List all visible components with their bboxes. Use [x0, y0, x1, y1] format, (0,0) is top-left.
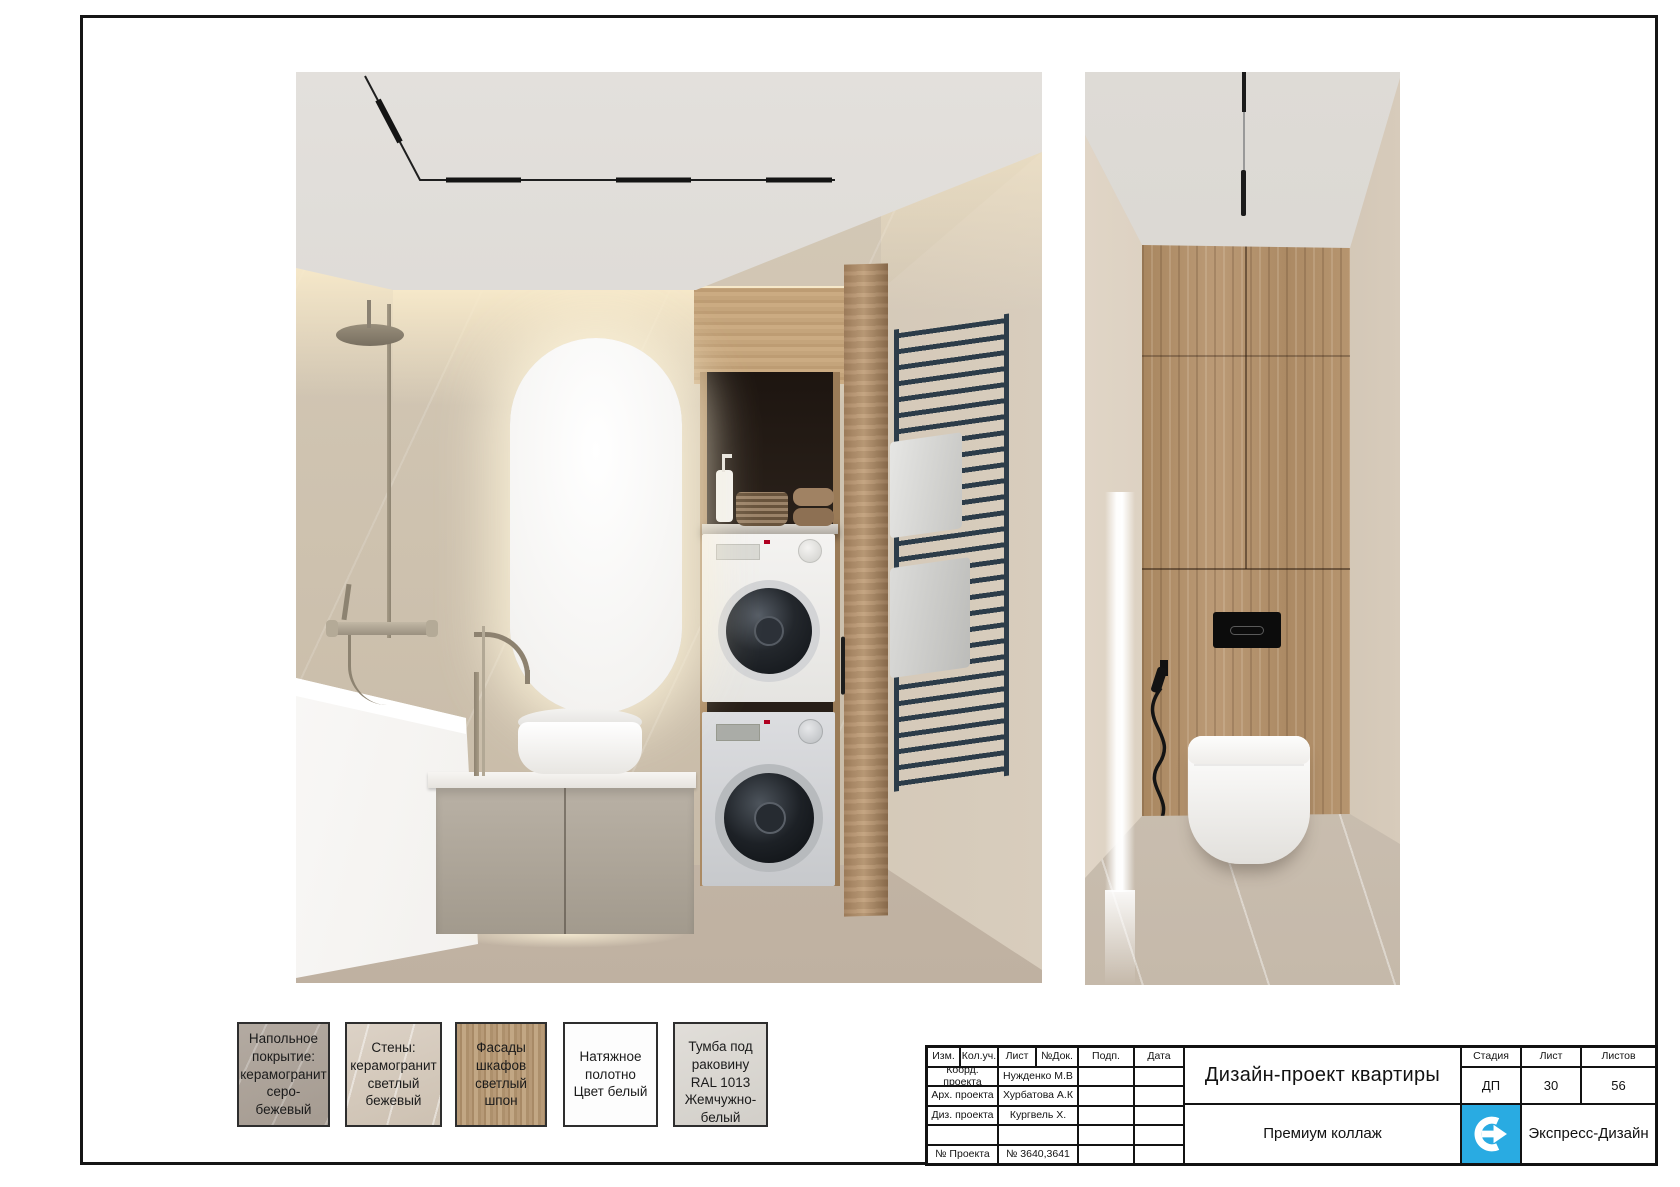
- shower-thermostat-bar: [332, 622, 432, 635]
- vanity-under-glow: [446, 934, 686, 948]
- stamp-header-data: Дата: [1134, 1047, 1184, 1067]
- sheets-header: Листов: [1581, 1047, 1656, 1067]
- stamp-row-label: Коорд. проекта: [927, 1067, 998, 1086]
- stamp-row-value: Хурбатова А.К: [998, 1086, 1078, 1106]
- dryer-knob: [798, 539, 822, 563]
- stamp-row-date: [1134, 1106, 1184, 1125]
- ceiling-track-light: [296, 72, 1042, 312]
- stamp-row-sign: [1078, 1145, 1134, 1164]
- washer-knob: [798, 719, 823, 744]
- stamp-header-izm: Изм.: [927, 1047, 960, 1067]
- material-swatch-walls-label: Стены: керамогранит светлый бежевый: [350, 1039, 437, 1110]
- toilet-seat-top: [1188, 736, 1310, 764]
- stamp-header-koluch: Кол.уч.: [960, 1047, 998, 1067]
- stage-value: ДП: [1461, 1067, 1521, 1104]
- wood-panel-seam-lower: [1142, 568, 1350, 570]
- cabinet-door-grain: [844, 263, 888, 916]
- stamp-row-date: [1134, 1086, 1184, 1106]
- stamp-row-sign: [1078, 1067, 1134, 1086]
- radiator-rail-right: [1004, 314, 1009, 777]
- towel-radiator: [892, 313, 1014, 792]
- vessel-sink-body: [518, 722, 642, 774]
- material-swatch-fronts: Фасады шкафов светлый шпон: [455, 1022, 547, 1127]
- stamp-row-value: Нужденко М.В: [998, 1067, 1078, 1086]
- company-logo-cell: [1461, 1104, 1521, 1164]
- stamp-header-list: Лист: [998, 1047, 1036, 1067]
- project-title: Дизайн-проект квартиры: [1184, 1047, 1461, 1104]
- flush-plate: [1213, 612, 1281, 648]
- sheets-value: 56: [1581, 1067, 1656, 1104]
- material-swatch-floor: Напольное покрытие: керамогранит серо-бе…: [237, 1022, 330, 1127]
- washer-brand-dot: [764, 720, 770, 724]
- stamp-row-value: № 3640,3641: [998, 1145, 1078, 1164]
- dryer-brand-dot: [764, 540, 770, 544]
- material-swatch-ceiling: Натяжное полотно Цвет белый: [563, 1022, 658, 1127]
- shower-bar: [387, 304, 391, 638]
- sheet-title: Премиум коллаж: [1184, 1104, 1461, 1164]
- wicker-basket: [736, 492, 788, 526]
- pendant-light-tube: [1241, 170, 1246, 216]
- material-swatch-ceiling-label: Натяжное полотно Цвет белый: [574, 1048, 648, 1101]
- material-swatch-floor-label: Напольное покрытие: керамогранит серо-бе…: [239, 1030, 328, 1119]
- title-block: Изм. Кол.уч. Лист №Док. Подп. Дата Коорд…: [925, 1045, 1658, 1166]
- stamp-row-label: Арх. проекта: [927, 1086, 998, 1106]
- wall-light-strip: [1105, 492, 1135, 892]
- wood-panel-seam-upper: [1142, 355, 1350, 357]
- stamp-row-sign: [1078, 1106, 1134, 1125]
- faucet-stem: [474, 672, 479, 776]
- vanity-cabinet: [436, 788, 694, 934]
- radiator-towel-top: [890, 432, 962, 538]
- wall-light-strip-fade: [1105, 890, 1135, 985]
- radiator-bars: [899, 318, 1004, 787]
- company-name: Экспресс-Дизайн: [1521, 1104, 1656, 1164]
- sheet-header: Лист: [1521, 1047, 1581, 1067]
- stamp-header-ndok: №Док.: [1036, 1047, 1078, 1067]
- folded-towel-bottom: [793, 508, 834, 526]
- stamp-row-label: № Проекта: [927, 1145, 998, 1164]
- pendant-light-cable: [1243, 112, 1245, 170]
- washer-door-hub: [754, 802, 786, 834]
- wall-hung-toilet: [1188, 736, 1310, 864]
- backlit-mirror: [510, 338, 682, 714]
- express-design-arrow-icon: [1470, 1113, 1512, 1155]
- stamp-row-label: Диз. проекта: [927, 1106, 998, 1125]
- stamp-row-label: [927, 1125, 998, 1145]
- stamp-row-value: Кургвель Х.: [998, 1106, 1078, 1125]
- material-swatch-vanity: Тумба под раковину RAL 1013 Жемчужно- бе…: [673, 1022, 768, 1127]
- stamp-header-podp: Подп.: [1078, 1047, 1134, 1067]
- radiator-towel-bottom: [890, 557, 970, 678]
- bathroom-render: [296, 72, 1042, 983]
- stamp-row-date: [1134, 1145, 1184, 1164]
- thermostat-knob-right: [426, 620, 438, 637]
- thermostat-knob-left: [326, 620, 338, 637]
- stamp-row-date: [1134, 1125, 1184, 1145]
- vanity-door-gap: [564, 788, 566, 934]
- stamp-row-date: [1134, 1067, 1184, 1086]
- stamp-row-sign: [1078, 1125, 1134, 1145]
- cabinet-open-door: [844, 263, 888, 916]
- pendant-light-cap: [1242, 72, 1246, 112]
- faucet-spout-tip: [525, 670, 530, 684]
- cabinet-door-handle: [841, 637, 845, 695]
- material-swatch-vanity-label: Тумба под раковину RAL 1013 Жемчужно- бе…: [685, 1038, 757, 1127]
- wood-panel-seam-vertical: [1245, 245, 1247, 569]
- folded-towel-top: [793, 488, 834, 506]
- material-swatch-walls: Стены: керамогранит светлый бежевый: [345, 1022, 442, 1127]
- vanity-countertop: [428, 772, 696, 788]
- wc-render: [1085, 72, 1400, 985]
- material-swatch-fronts-label: Фасады шкафов светлый шпон: [457, 1039, 545, 1110]
- flush-plate-button: [1230, 626, 1264, 635]
- dryer-door-hub: [754, 616, 784, 646]
- stamp-row-value: [998, 1125, 1078, 1145]
- tub-filler-bar: [482, 626, 485, 776]
- toilet-seat-line: [1194, 764, 1304, 766]
- sheet-value: 30: [1521, 1067, 1581, 1104]
- stamp-row-sign: [1078, 1086, 1134, 1106]
- stage-header: Стадия: [1461, 1047, 1521, 1067]
